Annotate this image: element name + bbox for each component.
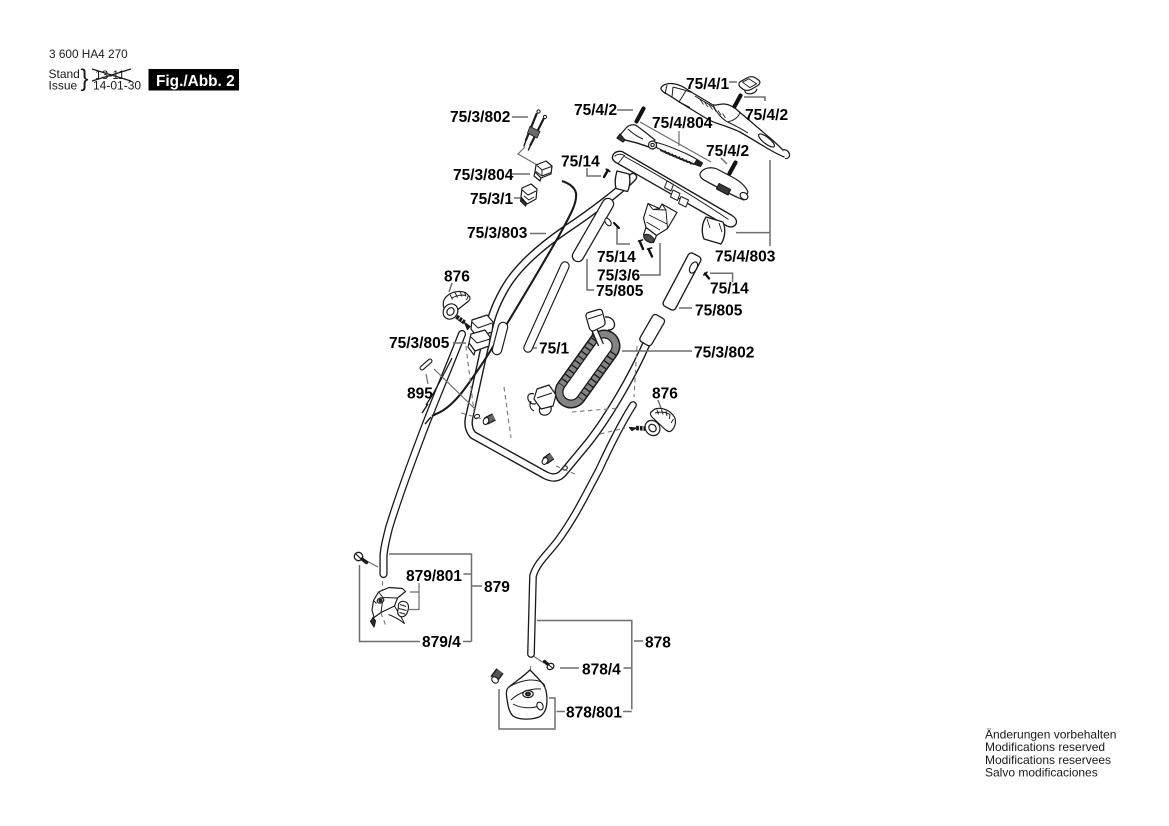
svg-text:879/4: 879/4 [422, 634, 461, 651]
svg-text:}: } [81, 65, 89, 92]
svg-text:879/801: 879/801 [406, 568, 462, 585]
svg-text:Fig./Abb. 2: Fig./Abb. 2 [156, 73, 235, 90]
svg-text:Salvo modificaciones: Salvo modificaciones [985, 766, 1098, 780]
svg-text:75/3/802: 75/3/802 [450, 109, 510, 126]
svg-text:878/4: 878/4 [582, 662, 621, 679]
svg-text:75/4/803: 75/4/803 [715, 249, 776, 266]
svg-text:878: 878 [645, 635, 671, 652]
svg-text:14-01-30: 14-01-30 [93, 79, 141, 93]
svg-text:75/3/803: 75/3/803 [467, 225, 528, 242]
svg-text:75/3/805: 75/3/805 [389, 335, 450, 352]
svg-text:3 600 HA4 270: 3 600 HA4 270 [49, 47, 128, 61]
svg-text:75/805: 75/805 [695, 303, 743, 320]
svg-text:75/3/802: 75/3/802 [694, 345, 754, 362]
svg-text:75/1: 75/1 [539, 341, 570, 358]
svg-text:75/3/804: 75/3/804 [453, 167, 514, 184]
svg-text:75/4/2: 75/4/2 [745, 107, 788, 124]
svg-text:Issue: Issue [49, 79, 78, 93]
svg-text:75/14: 75/14 [710, 281, 749, 298]
svg-text:75/4/2: 75/4/2 [706, 143, 749, 160]
svg-text:75/4/1: 75/4/1 [686, 76, 729, 93]
svg-text:878/801: 878/801 [566, 705, 622, 722]
svg-text:876: 876 [444, 269, 470, 286]
svg-text:75/805: 75/805 [596, 283, 644, 300]
svg-text:75/14: 75/14 [597, 249, 636, 266]
svg-text:75/4/2: 75/4/2 [574, 102, 617, 119]
svg-text:75/3/6: 75/3/6 [597, 268, 640, 285]
svg-text:75/4/804: 75/4/804 [652, 115, 713, 132]
svg-text:879: 879 [484, 579, 510, 596]
svg-text:75/3/1: 75/3/1 [470, 191, 513, 208]
svg-text:876: 876 [652, 386, 678, 403]
svg-text:895: 895 [407, 386, 433, 403]
svg-text:75/14: 75/14 [561, 154, 600, 171]
